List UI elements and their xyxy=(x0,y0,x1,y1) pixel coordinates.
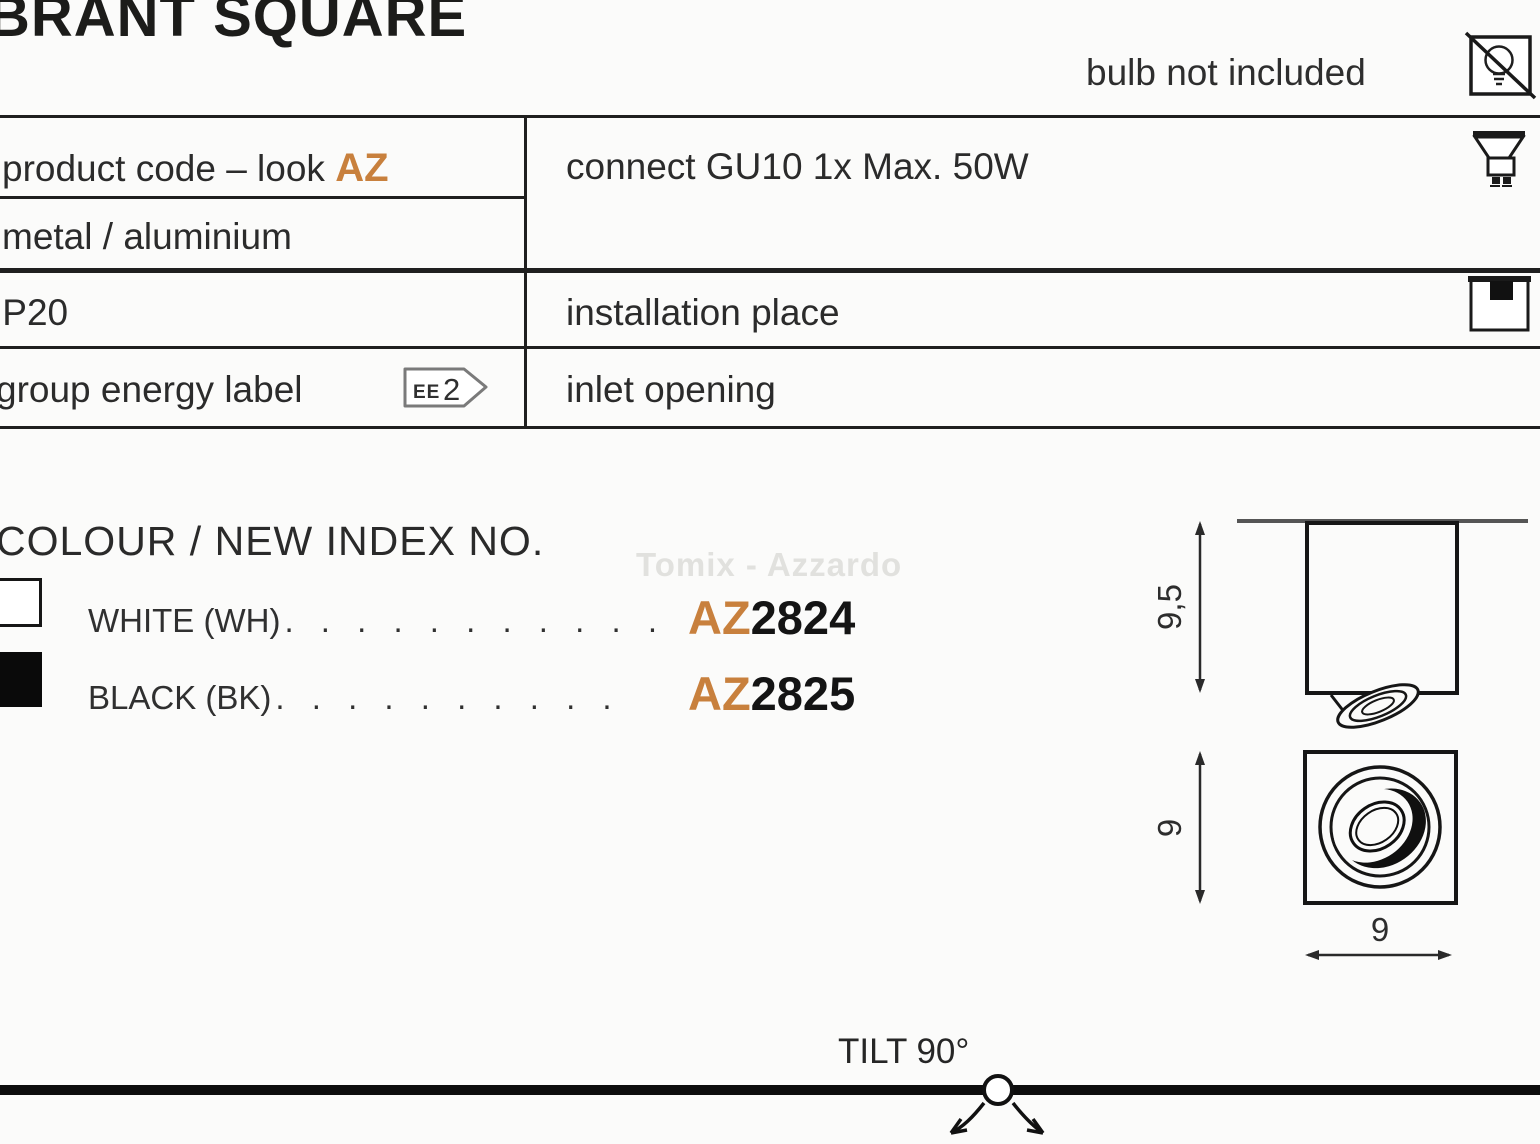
bottom-view-width-label: 9 xyxy=(1371,911,1389,948)
energy-badge-prefix: EE xyxy=(413,382,440,403)
bottom-view-height-label: 9 xyxy=(1151,819,1188,837)
bottom-view-drawing: 9 9 xyxy=(1151,751,1456,960)
gu10-socket-icon xyxy=(1473,131,1525,186)
datasheet-page: BRANT SQUARE bulb not included product c… xyxy=(0,0,1540,1144)
ceiling-mount-icon xyxy=(1468,278,1531,330)
energy-label-badge: EE 2 xyxy=(405,369,486,407)
tilt-diagram xyxy=(0,1076,1540,1133)
side-view-drawing: 9,5 xyxy=(1151,521,1528,736)
energy-badge-value: 2 xyxy=(443,372,460,407)
no-bulb-icon xyxy=(1466,33,1535,98)
side-view-height-label: 9,5 xyxy=(1151,584,1188,630)
vector-layer: EE 2 9,5 xyxy=(0,0,1540,1144)
